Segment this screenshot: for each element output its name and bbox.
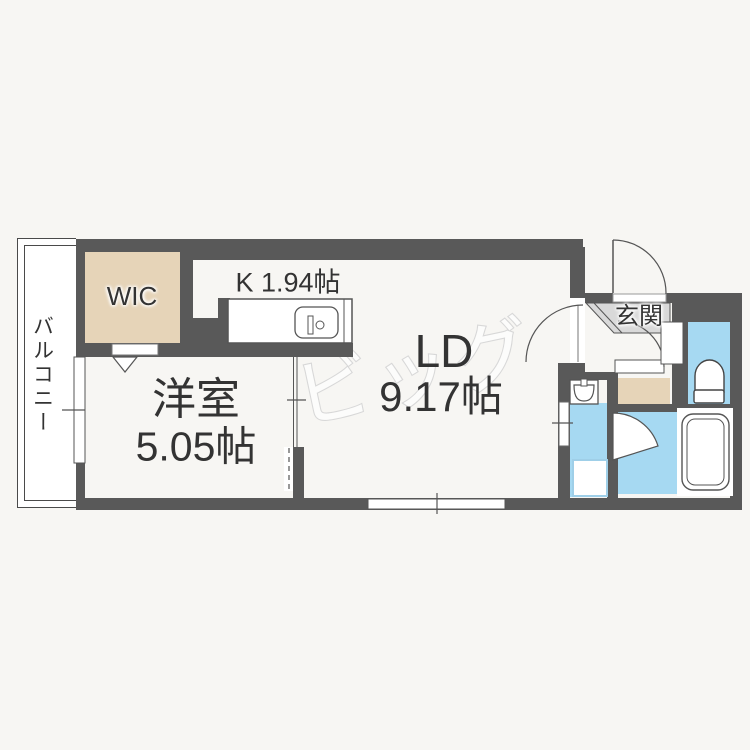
bathroom-door-fan [613,413,658,460]
toilet-door [661,322,683,364]
fixtures-layer [0,0,750,750]
entrance-label: 玄関 [615,305,663,329]
washbasin [570,379,598,404]
bathtub [677,408,733,496]
kitchen-label: K 1.94帖 [235,270,340,297]
wic-door [112,344,158,372]
ld-label: LD [415,328,474,374]
western-room-size-label: 5.05帖 [136,427,257,468]
wic-label: WIC [107,283,158,309]
kitchen-counter [228,299,352,343]
wic-door-arrow [113,357,137,372]
window-south [368,493,505,514]
ld-washroom-door [552,402,573,446]
entry-door [613,240,666,302]
window-west [62,357,85,463]
sink-faucet [308,316,313,334]
partition-sliding-door [284,357,306,491]
balcony-label: バルコニー [32,315,53,435]
ld-size-label: 9.17帖 [379,376,503,418]
toilet-fixture [694,360,724,403]
floor-plan: ビッグ [0,0,750,750]
ld-hall-door [526,298,585,363]
western-room-label: 洋室 [152,378,240,422]
